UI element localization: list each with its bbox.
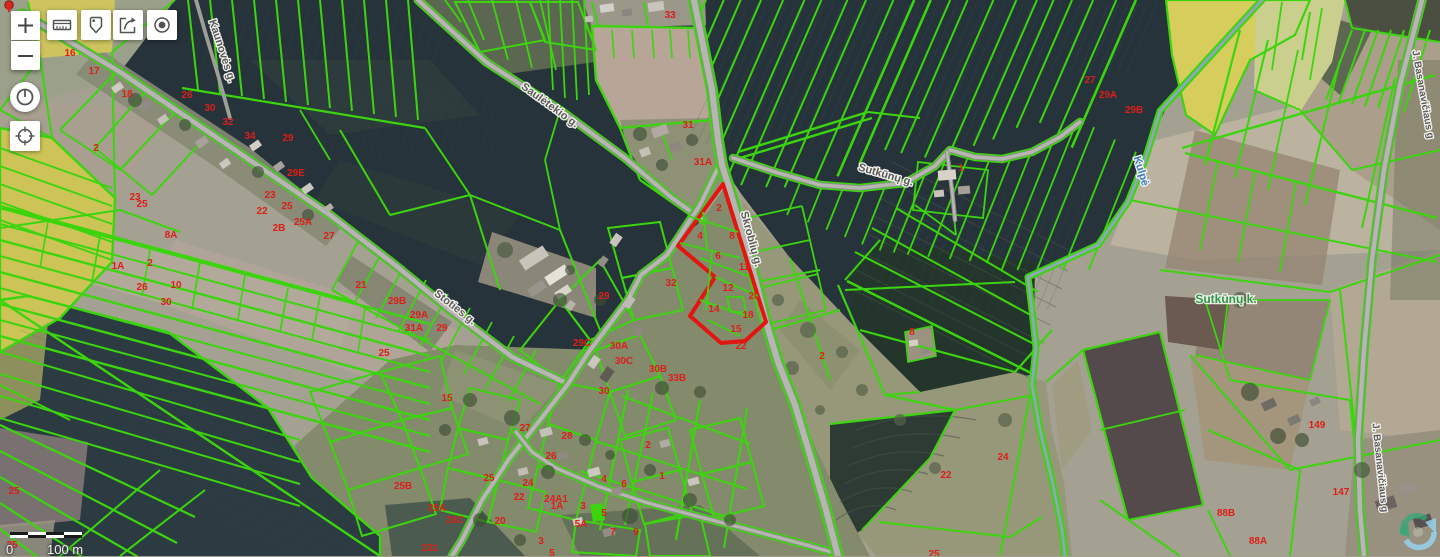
svg-text:22: 22 <box>940 470 952 481</box>
svg-text:1: 1 <box>958 163 964 174</box>
svg-text:88A: 88A <box>1249 536 1267 547</box>
svg-text:27: 27 <box>323 231 335 242</box>
svg-text:29: 29 <box>598 291 610 302</box>
svg-text:2B: 2B <box>273 223 286 234</box>
svg-text:27: 27 <box>519 423 531 434</box>
svg-text:30B: 30B <box>649 364 667 375</box>
svg-text:22: 22 <box>513 492 525 503</box>
svg-text:31A: 31A <box>694 157 712 168</box>
svg-text:29A: 29A <box>1099 90 1117 101</box>
svg-text:2: 2 <box>93 143 99 154</box>
svg-text:30: 30 <box>160 297 172 308</box>
svg-text:20: 20 <box>748 291 760 302</box>
svg-text:25: 25 <box>378 348 390 359</box>
svg-text:32: 32 <box>665 278 677 289</box>
svg-text:26: 26 <box>545 451 557 462</box>
svg-text:26: 26 <box>181 90 193 101</box>
svg-text:29B: 29B <box>1125 105 1143 116</box>
svg-text:26: 26 <box>136 282 148 293</box>
svg-text:25B: 25B <box>394 481 412 492</box>
svg-text:10: 10 <box>170 280 182 291</box>
svg-text:29C: 29C <box>573 338 591 349</box>
svg-text:7: 7 <box>610 527 616 538</box>
svg-text:15: 15 <box>730 324 742 335</box>
svg-text:8: 8 <box>729 231 735 242</box>
svg-text:3: 3 <box>538 536 544 547</box>
svg-text:8A: 8A <box>165 230 178 241</box>
svg-text:23: 23 <box>129 192 141 203</box>
svg-text:11: 11 <box>739 262 750 273</box>
svg-text:27: 27 <box>1084 75 1096 86</box>
svg-text:33: 33 <box>664 10 676 21</box>
svg-text:18: 18 <box>742 310 754 321</box>
svg-text:4: 4 <box>601 474 607 485</box>
svg-text:22: 22 <box>735 341 747 352</box>
svg-text:5: 5 <box>549 548 555 556</box>
svg-text:29A: 29A <box>410 310 428 321</box>
svg-text:21: 21 <box>355 280 367 291</box>
svg-text:30A: 30A <box>610 341 628 352</box>
svg-text:25: 25 <box>281 201 293 212</box>
svg-text:2: 2 <box>645 440 651 451</box>
svg-text:25A: 25A <box>428 503 446 514</box>
svg-text:2: 2 <box>716 203 722 214</box>
svg-text:16: 16 <box>64 48 76 59</box>
svg-text:2: 2 <box>147 258 153 269</box>
svg-text:2: 2 <box>819 351 825 362</box>
svg-text:29: 29 <box>282 133 294 144</box>
svg-text:29B: 29B <box>388 296 406 307</box>
svg-text:5: 5 <box>601 508 607 519</box>
svg-text:24: 24 <box>522 478 534 489</box>
svg-text:34: 34 <box>244 131 256 142</box>
svg-text:25A: 25A <box>294 217 312 228</box>
svg-text:147: 147 <box>1333 487 1350 498</box>
svg-text:9: 9 <box>633 527 639 538</box>
svg-text:149: 149 <box>1309 420 1326 431</box>
svg-text:23C: 23C <box>446 515 464 526</box>
svg-text:30C: 30C <box>615 356 633 367</box>
svg-text:29: 29 <box>436 323 448 334</box>
svg-text:24: 24 <box>997 452 1009 463</box>
svg-text:20: 20 <box>494 516 506 527</box>
svg-text:Sutkūnų k.: Sutkūnų k. <box>1195 292 1256 306</box>
svg-text:5A: 5A <box>575 519 588 530</box>
svg-text:88B: 88B <box>1217 508 1235 519</box>
svg-text:28: 28 <box>561 431 573 442</box>
svg-text:1: 1 <box>659 471 665 482</box>
svg-text:231: 231 <box>422 543 439 554</box>
svg-text:15: 15 <box>441 393 453 404</box>
svg-text:6: 6 <box>715 251 721 262</box>
svg-text:22: 22 <box>256 206 268 217</box>
svg-text:23: 23 <box>264 190 276 201</box>
svg-text:32: 32 <box>222 117 234 128</box>
svg-text:25: 25 <box>483 473 495 484</box>
svg-text:14: 14 <box>708 304 720 315</box>
svg-text:4: 4 <box>697 231 703 242</box>
svg-text:25: 25 <box>928 549 940 556</box>
svg-text:31: 31 <box>682 120 694 131</box>
svg-text:6: 6 <box>621 479 627 490</box>
svg-text:18: 18 <box>121 89 133 100</box>
svg-text:8: 8 <box>909 327 915 338</box>
svg-text:17: 17 <box>88 66 100 77</box>
svg-text:30: 30 <box>204 103 216 114</box>
svg-text:29E: 29E <box>287 168 305 179</box>
svg-text:1A: 1A <box>551 501 564 512</box>
svg-text:31A: 31A <box>405 323 423 334</box>
svg-text:25: 25 <box>8 486 20 497</box>
svg-text:1A: 1A <box>112 261 125 272</box>
svg-text:12: 12 <box>722 283 734 294</box>
svg-text:33B: 33B <box>668 373 686 384</box>
svg-text:3: 3 <box>580 501 586 512</box>
svg-text:30: 30 <box>598 386 610 397</box>
